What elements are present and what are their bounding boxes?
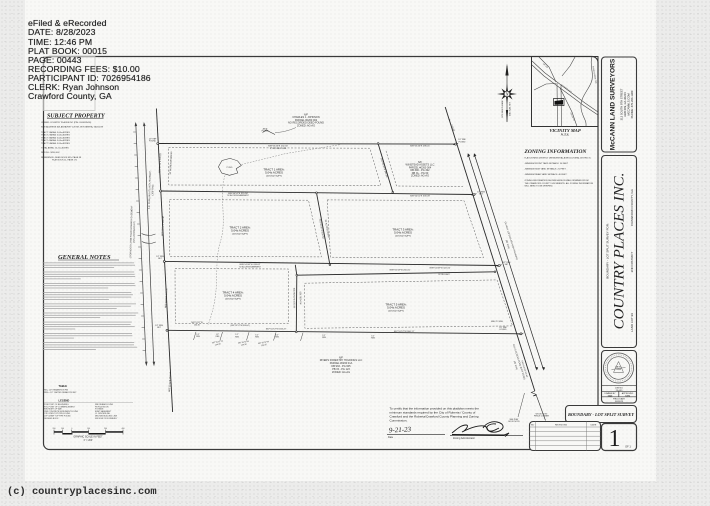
svg-text:REVISIONS: REVISIONS xyxy=(555,425,567,427)
svg-text:RBS: RBS xyxy=(196,336,200,338)
svg-text:DB DEED BOOK: DB DEED BOOK xyxy=(44,418,59,420)
svg-text:30' ACCESS EASEMENT: 30' ACCESS EASEMENT xyxy=(239,265,261,268)
svg-text:400: 400 xyxy=(122,428,125,430)
svg-text:-MINIMUM FRONT YARD SETBACK: 5: -MINIMUM FRONT YARD SETBACK: 50 FEET xyxy=(525,162,569,165)
svg-text:5.04± ACRES: 5.04± ACRES xyxy=(231,229,249,233)
svg-text:LAND LOT 99: LAND LOT 99 xyxy=(630,313,634,332)
svg-text:MAG NAIL SET: MAG NAIL SET xyxy=(509,101,512,116)
svg-text:PARCEL #0260 002: PARCEL #0260 002 xyxy=(41,151,60,154)
svg-text:SET: SET xyxy=(157,327,162,329)
svg-text:5.04± ACRES: 5.04± ACRES xyxy=(394,231,412,235)
svg-text:SET: SET xyxy=(479,194,484,196)
svg-text:(219,542 SQFT): (219,542 SQFT) xyxy=(232,234,248,236)
svg-text:N00°25'54"E 260.30': N00°25'54"E 260.30' xyxy=(162,215,165,236)
svg-text:R-AG ZONING DISTRICT (RESIDENT: R-AG ZONING DISTRICT (RESIDENTIAL AGRICU… xyxy=(525,156,591,159)
svg-text:RBS: RBS xyxy=(216,336,220,338)
svg-text:BOOK NOTE: BOOK NOTE xyxy=(508,421,520,423)
svg-text:RBS: RBS xyxy=(371,337,375,339)
svg-text:(80' R/W): (80' R/W) xyxy=(505,240,510,250)
svg-text:Date: Date xyxy=(388,436,394,439)
svg-text:RBS: RBS xyxy=(322,337,326,339)
svg-text:S89°54'51"E 339.09': S89°54'51"E 339.09' xyxy=(410,196,431,198)
svg-text:BOUNDARY - LOT SPLIT SURVEY FO: BOUNDARY - LOT SPLIT SURVEY FOR: xyxy=(606,223,610,279)
svg-text:TOTAL AREA: 25.21± ACRES: TOTAL AREA: 25.21± ACRES xyxy=(41,147,69,150)
svg-text:LEGEND: LEGEND xyxy=(59,399,70,403)
svg-text:200: 200 xyxy=(104,428,107,430)
svg-text:5.04± ACRES: 5.04± ACRES xyxy=(224,294,242,298)
svg-text:PLAT BOOK 11, PAGE 171: PLAT BOOK 11, PAGE 171 xyxy=(52,159,78,162)
svg-text:9-21-23: 9-21-23 xyxy=(389,425,412,434)
svg-text:TABLE: TABLE xyxy=(59,384,68,388)
svg-text:MBL 25' SIDE: MBL 25' SIDE xyxy=(491,321,503,323)
svg-text:ZONED: AG-AG: ZONED: AG-AG xyxy=(411,175,429,178)
svg-text:Zoning Administrator: Zoning Administrator xyxy=(453,437,475,440)
svg-text:REFERENCE: DEED BOOK 695- PAGE: REFERENCE: DEED BOOK 695- PAGE 58 xyxy=(41,156,82,159)
svg-text:N89°55'18"W 200.00': N89°55'18"W 200.00' xyxy=(390,269,411,271)
svg-text:100: 100 xyxy=(87,428,90,430)
svg-text:S.R. #128 (AKA ATLANTA HIGHWAY: S.R. #128 (AKA ATLANTA HIGHWAY) xyxy=(148,170,152,209)
svg-text:RBS: RBS xyxy=(275,337,279,339)
svg-text:Commission.: Commission. xyxy=(390,419,408,423)
svg-text:RBS = 1/2" CAPPED REBAR PIN SE: RBS = 1/2" CAPPED REBAR PIN SET xyxy=(44,391,77,394)
svg-text:ZONING INFORMATION SHOWN HEREO: ZONING INFORMATION SHOWN HEREON WAS OBTA… xyxy=(525,179,589,182)
svg-text:(219,542 SQFT): (219,542 SQFT) xyxy=(266,176,282,178)
svg-text:23-039: 23-039 xyxy=(616,390,623,392)
svg-text:S87°51'57"W 366.17': S87°51'57"W 366.17' xyxy=(394,331,415,333)
svg-text:TRACT 1 AREA: 5.04± ACRES: TRACT 1 AREA: 5.04± ACRES xyxy=(41,131,70,134)
svg-text:PHONE: 470-204-1380: PHONE: 470-204-1380 xyxy=(630,90,634,118)
svg-text:30' RD ESMT: 30' RD ESMT xyxy=(438,274,450,276)
svg-text:ZONING INFORMATION: ZONING INFORMATION xyxy=(524,149,588,155)
svg-text:S87°51'57"W 333.47': S87°51'57"W 333.47' xyxy=(266,329,287,331)
svg-text:GRIFFIN, GA 30224: GRIFFIN, GA 30224 xyxy=(623,92,627,117)
svg-text:FENCE CORNER: FENCE CORNER xyxy=(534,416,550,418)
svg-text:N00°24'03"E 245.50': N00°24'03"E 245.50' xyxy=(165,287,168,308)
svg-text:134.35': 134.35' xyxy=(215,343,222,346)
svg-text:(AKA JOHNSON ST): (AKA JOHNSON ST) xyxy=(133,221,137,243)
svg-text:SET: SET xyxy=(158,258,163,260)
svg-text:200: 200 xyxy=(53,428,56,430)
svg-text:S* RB STACK LINE: S* RB STACK LINE xyxy=(270,147,287,150)
svg-text:5.04± ACRES: 5.04± ACRES xyxy=(265,171,283,175)
svg-text:(219,542 SQFT): (219,542 SQFT) xyxy=(395,236,411,238)
svg-text:30' ACCESS EASEMENT: 30' ACCESS EASEMENT xyxy=(227,194,249,197)
svg-text:RBS: RBS xyxy=(235,336,239,338)
svg-text:SET: SET xyxy=(505,264,510,266)
svg-text:N89°52'08"W 322.06': N89°52'08"W 322.06' xyxy=(430,267,451,269)
svg-text:BOUNDARY - LOT SPLIT SURVEY: BOUNDARY - LOT SPLIT SURVEY xyxy=(567,412,634,417)
svg-text:313 SOUTH 9TH STREET: 313 SOUTH 9TH STREET xyxy=(620,88,624,120)
svg-text:FOUND: FOUND xyxy=(459,141,466,143)
svg-text:S10°30'30"W 218.52': S10°30'30"W 218.52' xyxy=(318,219,324,240)
svg-text:OWNER: COUNTRY PLACES INC (PIN: OWNER: COUNTRY PLACES INC (PIN: C000335/… xyxy=(41,121,91,124)
svg-text:N: N xyxy=(505,92,509,97)
svg-text:1: 1 xyxy=(609,426,621,452)
svg-text:POND: POND xyxy=(227,167,233,169)
svg-text:-MINIMUM SIDE YARD SETBACK: 25: -MINIMUM SIDE YARD SETBACK: 25 FEET xyxy=(525,168,567,171)
svg-text:FOUND: FOUND xyxy=(262,131,269,133)
svg-text:FIELD DATE: FIELD DATE xyxy=(613,398,625,401)
svg-text:S01°05'54"W: S01°05'54"W xyxy=(299,292,301,306)
svg-text:(219,542 SQFT): (219,542 SQFT) xyxy=(388,311,404,313)
svg-text:WILL NEED TO BE VERIFIED.: WILL NEED TO BE VERIFIED. xyxy=(525,186,554,188)
svg-text:100: 100 xyxy=(61,428,64,430)
svg-text:134.35': 134.35' xyxy=(241,344,248,347)
svg-text:SR 128: SR 128 xyxy=(542,63,548,69)
svg-text:SITE BENCHMARK: SITE BENCHMARK xyxy=(501,99,504,117)
svg-text:(100' R/W): (100' R/W) xyxy=(152,184,154,195)
svg-text:134.35': 134.35' xyxy=(194,325,201,327)
svg-text:FOUND: FOUND xyxy=(500,329,507,331)
svg-text:TWM: TWM xyxy=(625,395,630,397)
svg-text:TRACT 3 AREA: 5.04± ACRES: TRACT 3 AREA: 5.04± ACRES xyxy=(41,136,70,139)
svg-text:30' INGRESS/EGRESS: 30' INGRESS/EGRESS xyxy=(170,151,173,175)
svg-text:TRACT 4 AREA: 5.04± ACRES: TRACT 4 AREA: 5.04± ACRES xyxy=(41,139,70,142)
svg-text:GILLIS RD: GILLIS RD xyxy=(569,112,575,122)
svg-text:MCCANNLS.COM: MCCANNLS.COM xyxy=(627,93,631,116)
svg-text:TRACT 5 AREA: 5.04± ACRES: TRACT 5 AREA: 5.04± ACRES xyxy=(41,142,70,145)
svg-text:S01°05'54"W 155.09': S01°05'54"W 155.09' xyxy=(292,288,294,309)
svg-text:3456: 3456 xyxy=(616,369,622,371)
svg-text:(219,542 SQFT): (219,542 SQFT) xyxy=(225,299,241,301)
svg-text:S89°55'43"E 298.01': S89°55'43"E 298.01' xyxy=(410,146,431,148)
svg-text:CRAWFORD COUNTY, GA: CRAWFORD COUNTY, GA xyxy=(630,189,634,226)
svg-text:RBS: RBS xyxy=(255,337,259,339)
svg-text:ZONED: AG-AG: ZONED: AG-AG xyxy=(332,371,350,374)
svg-text:9/8/2023: 9/8/2023 xyxy=(615,401,624,403)
svg-text:N.T.S.: N.T.S. xyxy=(560,133,570,137)
svg-text:-MINIMUM REAR YARD SETBACK: 40: -MINIMUM REAR YARD SETBACK: 40 FEET xyxy=(525,173,568,176)
svg-text:KAM: KAM xyxy=(608,394,613,397)
svg-text:N/F NOW OR FORMERLY: N/F NOW OR FORMERLY xyxy=(95,418,118,420)
svg-text:TRACT 2 AREA: 5.04± ACRES: TRACT 2 AREA: 5.04± ACRES xyxy=(41,134,70,137)
svg-text:(S87°51'57"W 699.64'): (S87°51'57"W 699.64') xyxy=(230,325,249,327)
svg-text:THE CRAWFORD COUNTY GIS WEBSIT: THE CRAWFORD COUNTY GIS WEBSITE. ALL ZON… xyxy=(525,182,594,185)
svg-text:SITE ADDRESS: ATLANTA HWY 128: SITE ADDRESS: ATLANTA HWY 128 SR, W ROBE… xyxy=(41,125,104,128)
svg-text:FOUND: FOUND xyxy=(149,141,156,143)
svg-text:McCANN LAND SURVEYORS: McCANN LAND SURVEYORS xyxy=(610,58,617,150)
svg-text:1" = 200': 1" = 200' xyxy=(83,439,93,442)
svg-text:GA No.: GA No. xyxy=(615,365,622,368)
svg-text:NO: NO xyxy=(531,425,535,427)
svg-text:N00°27'32"E 132.03': N00°27'32"E 132.03' xyxy=(159,152,162,173)
svg-text:L=64.58': L=64.58' xyxy=(450,124,454,132)
svg-text:5.04± ACRES: 5.04± ACRES xyxy=(387,306,405,310)
svg-text:134.35': 134.35' xyxy=(261,344,268,347)
svg-text:0: 0 xyxy=(71,428,72,430)
svg-text:ZONED: AG-AG: ZONED: AG-AG xyxy=(297,124,315,127)
svg-text:COUNTRY PLACES INC.: COUNTRY PLACES INC. xyxy=(612,173,628,330)
svg-text:2ND DISTRICT: 2ND DISTRICT xyxy=(630,252,634,273)
svg-text:DATE: DATE xyxy=(591,424,597,427)
svg-text:OF 1: OF 1 xyxy=(625,445,631,449)
svg-text:(40' R/W): (40' R/W) xyxy=(513,361,518,371)
